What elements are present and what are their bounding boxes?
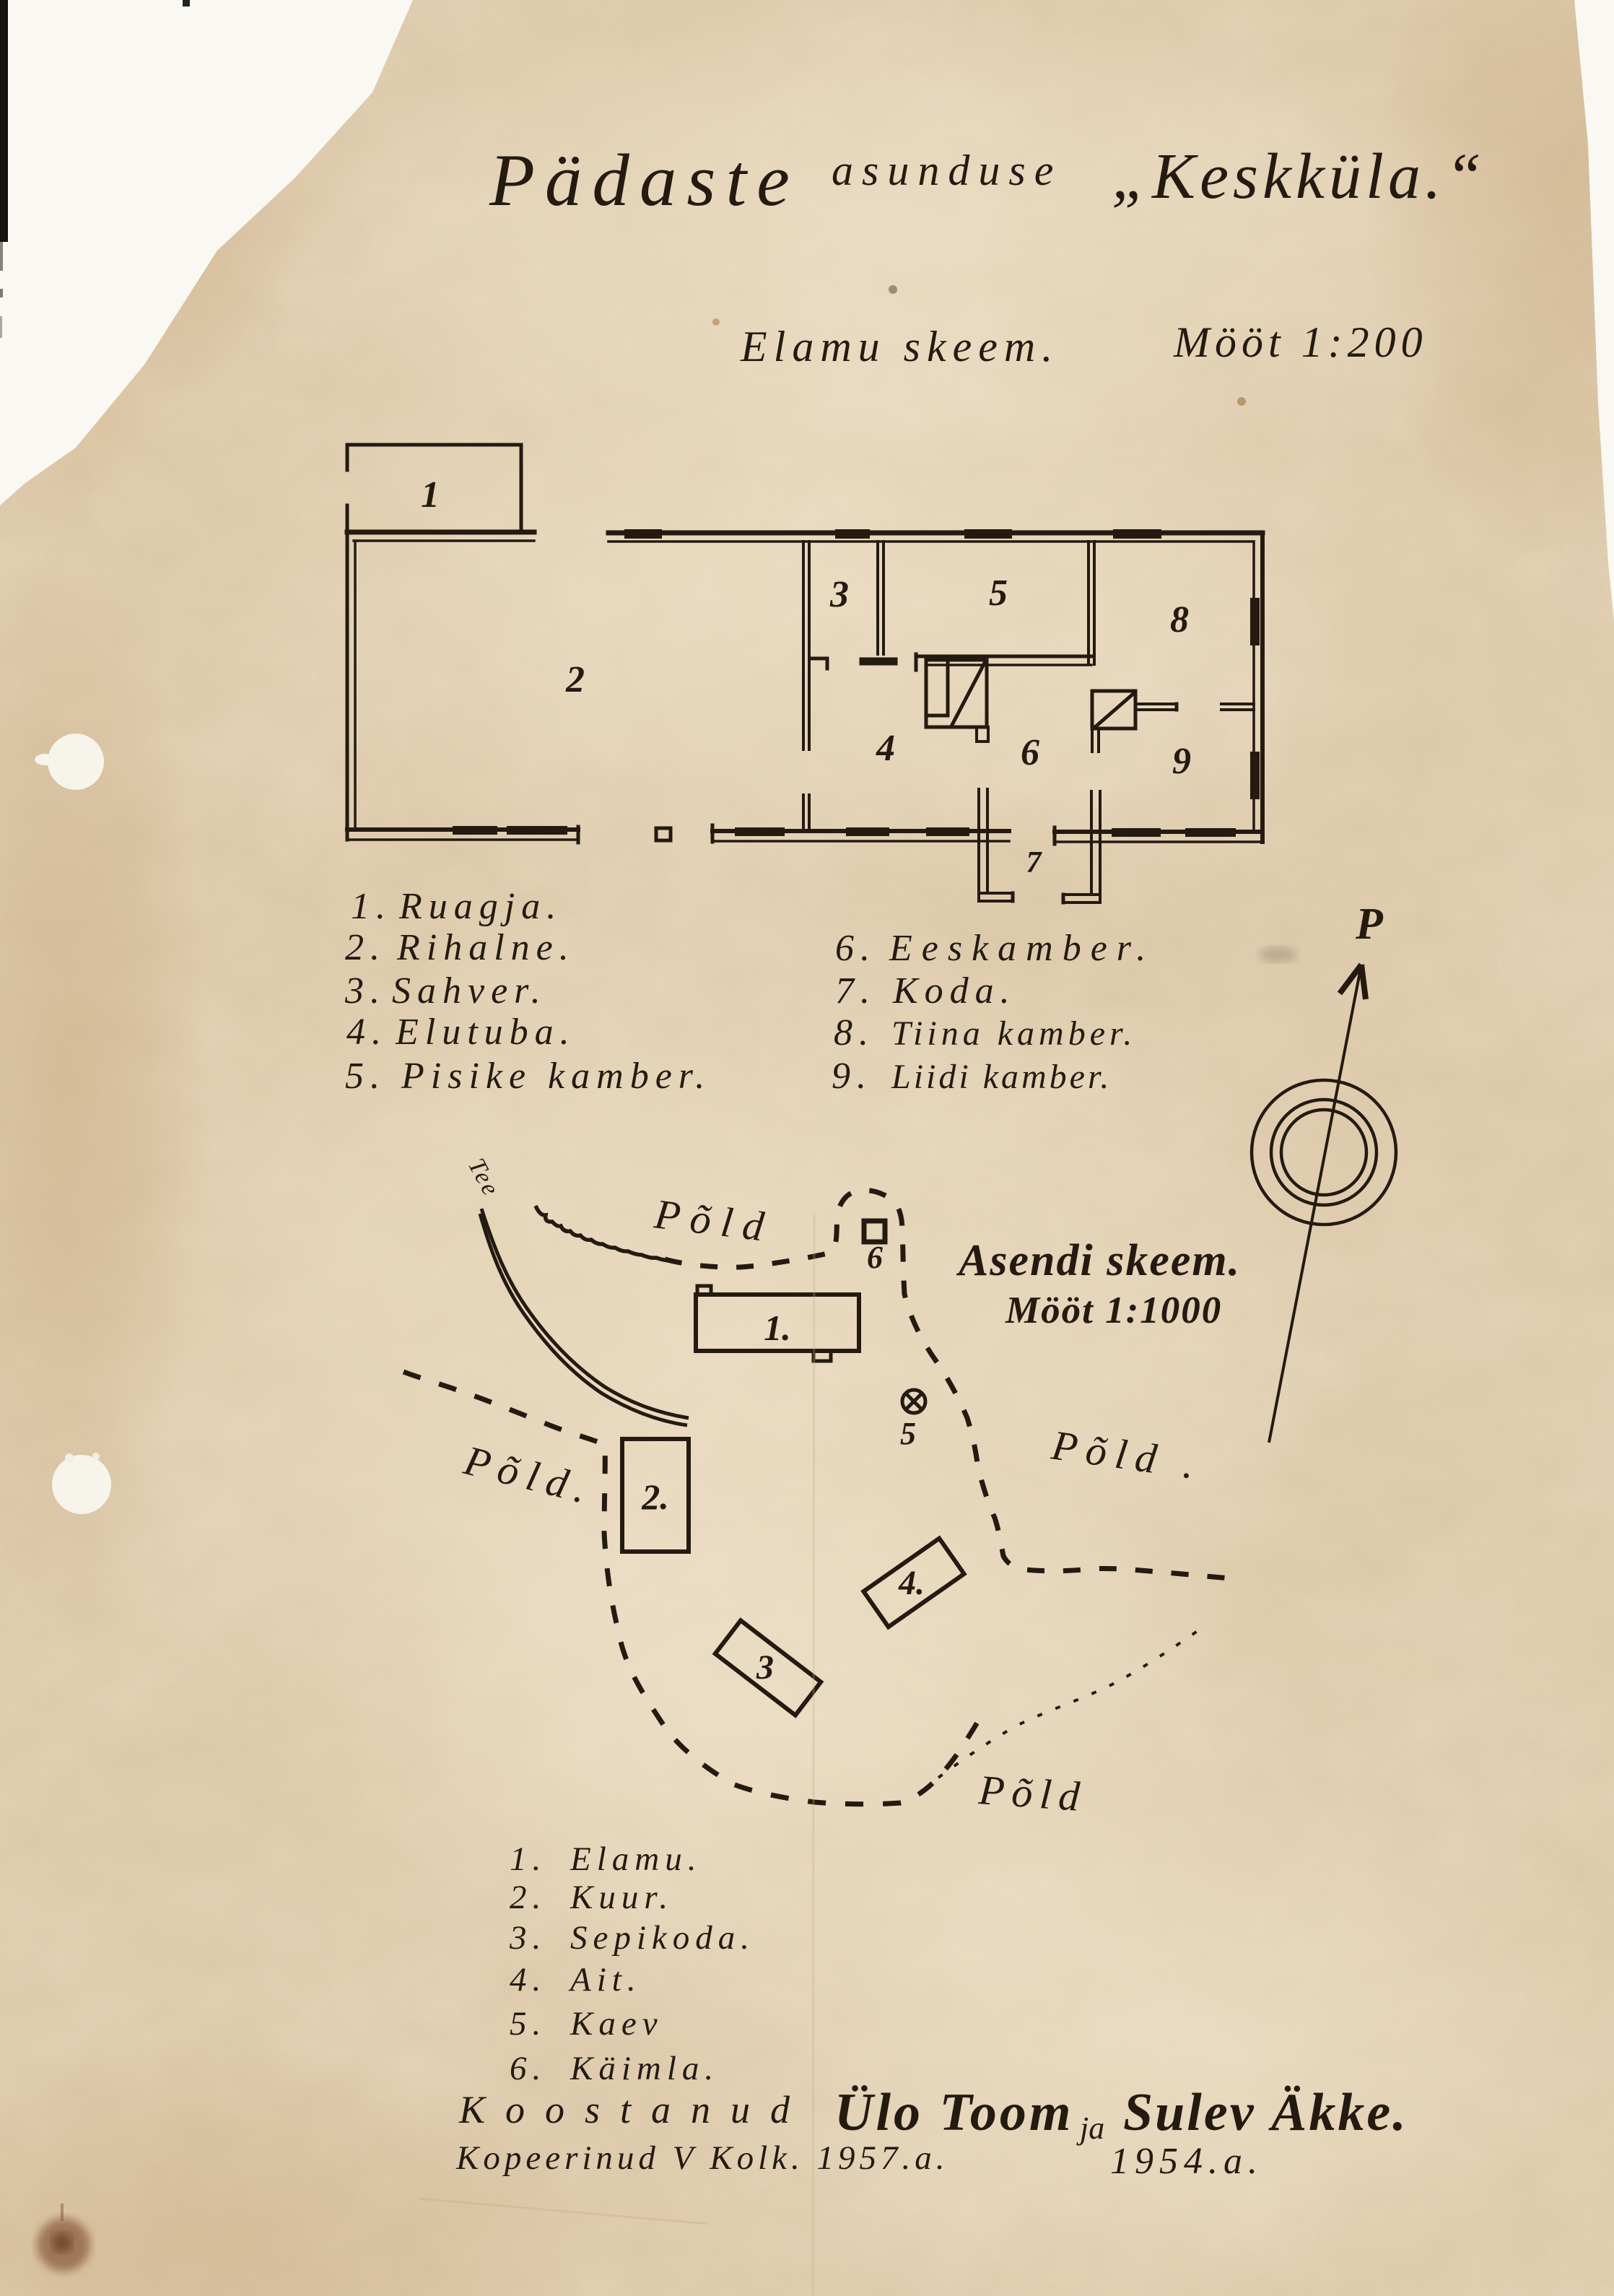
svg-text:3.: 3. xyxy=(344,970,386,1012)
svg-text:Elutuba.: Elutuba. xyxy=(395,1012,576,1053)
svg-text:Ait.: Ait. xyxy=(568,1961,642,1999)
svg-text:4.: 4. xyxy=(346,1012,388,1053)
svg-text:Elamu skeem.: Elamu skeem. xyxy=(740,323,1059,370)
svg-text:6.: 6. xyxy=(835,928,876,969)
svg-text:Pisike kamber.: Pisike kamber. xyxy=(401,1056,711,1097)
svg-text:Koda.: Koda. xyxy=(892,970,1016,1012)
svg-text:Pädaste: Pädaste xyxy=(489,139,800,222)
svg-text:Elamu.: Elamu. xyxy=(570,1840,702,1878)
svg-text:Mööt 1:200: Mööt 1:200 xyxy=(1173,318,1428,366)
svg-text:5.: 5. xyxy=(345,1056,386,1097)
svg-text:4.: 4. xyxy=(898,1564,925,1602)
svg-text:4: 4 xyxy=(876,728,895,769)
svg-text:Asendi skeem.: Asendi skeem. xyxy=(956,1236,1241,1285)
svg-text:Mööt 1:1000: Mööt 1:1000 xyxy=(1005,1290,1222,1331)
svg-text:Põld: Põld xyxy=(977,1766,1089,1820)
svg-text:5: 5 xyxy=(989,573,1008,614)
svg-text:Kopeerinud V Kolk. 1957.a.: Kopeerinud V Kolk. 1957.a. xyxy=(455,2139,949,2177)
svg-text:Liidi kamber.: Liidi kamber. xyxy=(891,1058,1112,1096)
svg-text:Ülo Toom: Ülo Toom xyxy=(834,2083,1073,2142)
svg-text:2.: 2. xyxy=(641,1477,669,1517)
svg-text:7: 7 xyxy=(1026,846,1043,879)
svg-text:Kuur.: Kuur. xyxy=(570,1879,673,1916)
svg-text:Käimla.: Käimla. xyxy=(570,2050,719,2087)
svg-text:7.: 7. xyxy=(835,970,876,1012)
svg-text:4.: 4. xyxy=(510,1961,546,1999)
svg-text:Sepikoda.: Sepikoda. xyxy=(570,1919,755,1957)
svg-text:9.: 9. xyxy=(832,1056,873,1097)
svg-text:3.: 3. xyxy=(509,1919,546,1957)
svg-text:5: 5 xyxy=(900,1416,916,1451)
svg-text:2: 2 xyxy=(565,659,585,700)
svg-text:1.: 1. xyxy=(764,1308,791,1348)
svg-text:2.: 2. xyxy=(345,927,386,968)
svg-text:8: 8 xyxy=(1170,599,1189,640)
svg-text:„Keskküla.“: „Keskküla.“ xyxy=(1112,141,1486,212)
svg-text:8.: 8. xyxy=(834,1012,875,1053)
svg-text:Tiina kamber.: Tiina kamber. xyxy=(891,1014,1136,1053)
svg-text:9: 9 xyxy=(1172,741,1191,782)
svg-text:asunduse: asunduse xyxy=(832,147,1062,194)
svg-text:3: 3 xyxy=(756,1648,774,1687)
svg-text:ja: ja xyxy=(1076,2110,1104,2146)
svg-text:6: 6 xyxy=(1021,732,1039,773)
svg-text:6.: 6. xyxy=(510,2050,546,2087)
svg-text:Sulev Äkke.: Sulev Äkke. xyxy=(1123,2083,1408,2142)
svg-text:Rihalne.: Rihalne. xyxy=(396,927,575,968)
svg-text:Eeskamber.: Eeskamber. xyxy=(889,928,1155,969)
svg-text:1.: 1. xyxy=(510,1840,546,1878)
svg-text:6: 6 xyxy=(867,1240,883,1275)
svg-text:Kaev: Kaev xyxy=(570,2005,663,2043)
svg-text:1.: 1. xyxy=(351,886,392,927)
svg-text:P: P xyxy=(1355,900,1384,949)
svg-text:3: 3 xyxy=(829,574,849,615)
svg-text:1954.a.: 1954.a. xyxy=(1110,2141,1263,2182)
svg-text:5.: 5. xyxy=(510,2005,546,2043)
svg-text:Koostanud: Koostanud xyxy=(458,2088,810,2131)
svg-text:Ruagja.: Ruagja. xyxy=(398,886,562,927)
svg-text:Sahver.: Sahver. xyxy=(392,970,547,1012)
svg-text:2.: 2. xyxy=(510,1879,546,1916)
svg-text:1: 1 xyxy=(421,474,440,516)
